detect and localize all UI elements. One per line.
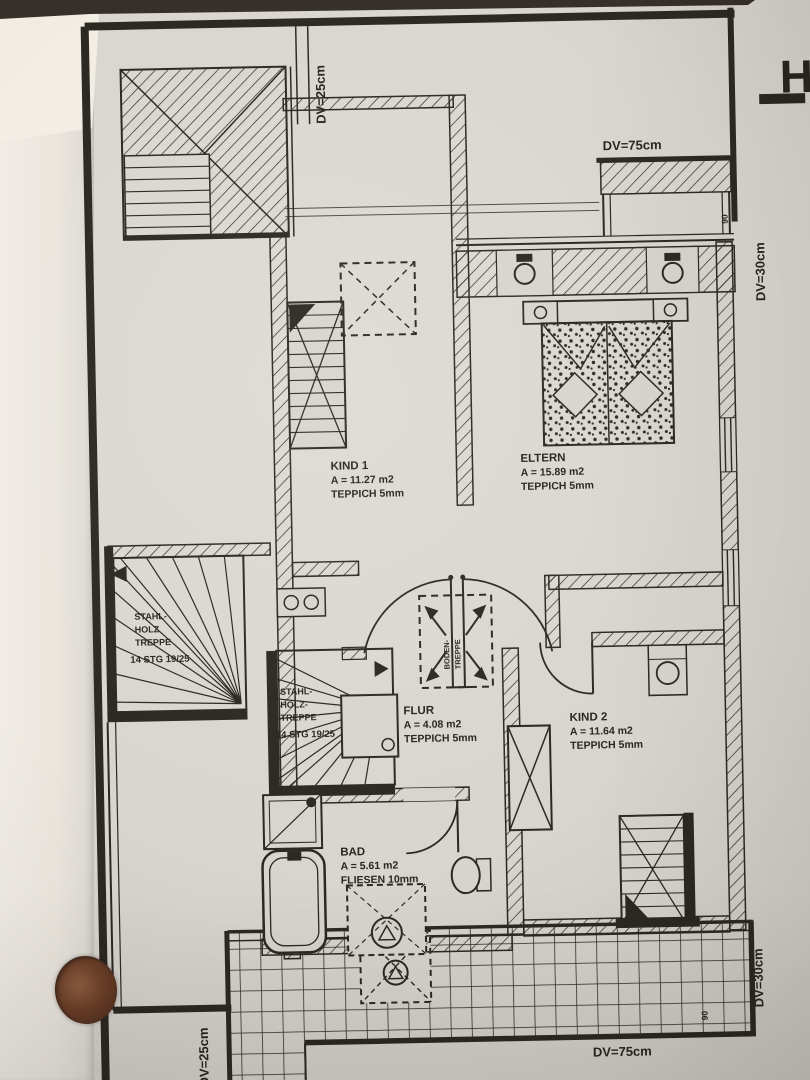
door-width-top: 90 <box>720 214 730 224</box>
left-winder-stair <box>110 556 246 713</box>
floor-plan-photo: H <box>0 0 810 1080</box>
room-name: FLUR <box>403 705 435 718</box>
floor-plan-drawing: H <box>0 0 810 1080</box>
dim-bottom: DV=75cm <box>593 1043 652 1059</box>
dim-right-bottom: DV=30cm <box>750 948 766 1007</box>
room-label-kind1: KIND 1 A = 11.27 m2 TEPPICH 5mm <box>330 459 404 500</box>
room-flooring: TEPPICH 5mm <box>404 732 477 745</box>
margin-letter: H <box>779 50 810 103</box>
room-name: BAD <box>340 846 365 858</box>
attic-hatch-label-1: BODEN- <box>442 639 452 669</box>
dim-right-top: DV=30cm <box>752 242 768 301</box>
heating-manifold <box>277 588 326 617</box>
kind2-stair <box>614 812 700 928</box>
room-name: KIND 2 <box>569 711 607 724</box>
stair-line4: 14 STG 19/25 <box>130 654 190 666</box>
dim-top-left: DV=25cm <box>312 65 328 124</box>
stair-line1: STAHL- <box>134 611 167 622</box>
room-label-eltern: ELTERN A = 15.89 m2 TEPPICH 5mm <box>520 452 594 493</box>
stair-line3: TREPPE <box>280 712 316 723</box>
stair-line2: HOLZ- <box>280 699 308 710</box>
stair-line1: STAHL- <box>280 686 313 697</box>
room-name: KIND 1 <box>330 460 369 473</box>
room-label-bad: BAD A = 5.61 m2 FLIESEN 10mm <box>340 845 418 887</box>
dim-bottom-left: DV=25cm <box>196 1027 212 1080</box>
stair-line2: HOLZ <box>135 624 160 634</box>
stair-line4: 14 STG 19/25 <box>276 729 336 741</box>
room-flooring: TEPPICH 5mm <box>331 487 404 500</box>
dim-top: DV=75cm <box>603 137 662 153</box>
room-flooring: TEPPICH 5mm <box>521 480 594 493</box>
kind2-fixtures <box>506 645 690 831</box>
room-area: A = 5.61 m2 <box>340 860 398 873</box>
double-bed <box>523 299 690 446</box>
room-name: ELTERN <box>520 452 565 465</box>
room-label-flur: FLUR A = 4.08 m2 TEPPICH 5mm <box>403 704 477 745</box>
room-area: A = 15.89 m2 <box>521 466 585 479</box>
attic-hatch: BODEN- TREPPE <box>419 595 493 688</box>
attic-hatch-label-2: TREPPE <box>453 639 463 669</box>
room-area: A = 4.08 m2 <box>404 718 462 731</box>
room-flooring: FLIESEN 10mm <box>341 873 419 887</box>
kind1-skylight <box>340 262 415 335</box>
exterior-stair-block <box>120 26 312 240</box>
room-area: A = 11.27 m2 <box>331 474 394 487</box>
door-width-bottom: 90 <box>700 1011 710 1021</box>
room-area: A = 11.64 m2 <box>570 725 633 738</box>
kind1-stair <box>287 301 346 448</box>
room-flooring: TEPPICH 5mm <box>570 739 643 752</box>
stair-line3: TREPPE <box>135 637 171 648</box>
room-label-kind2: KIND 2 A = 11.64 m2 TEPPICH 5mm <box>569 711 643 752</box>
